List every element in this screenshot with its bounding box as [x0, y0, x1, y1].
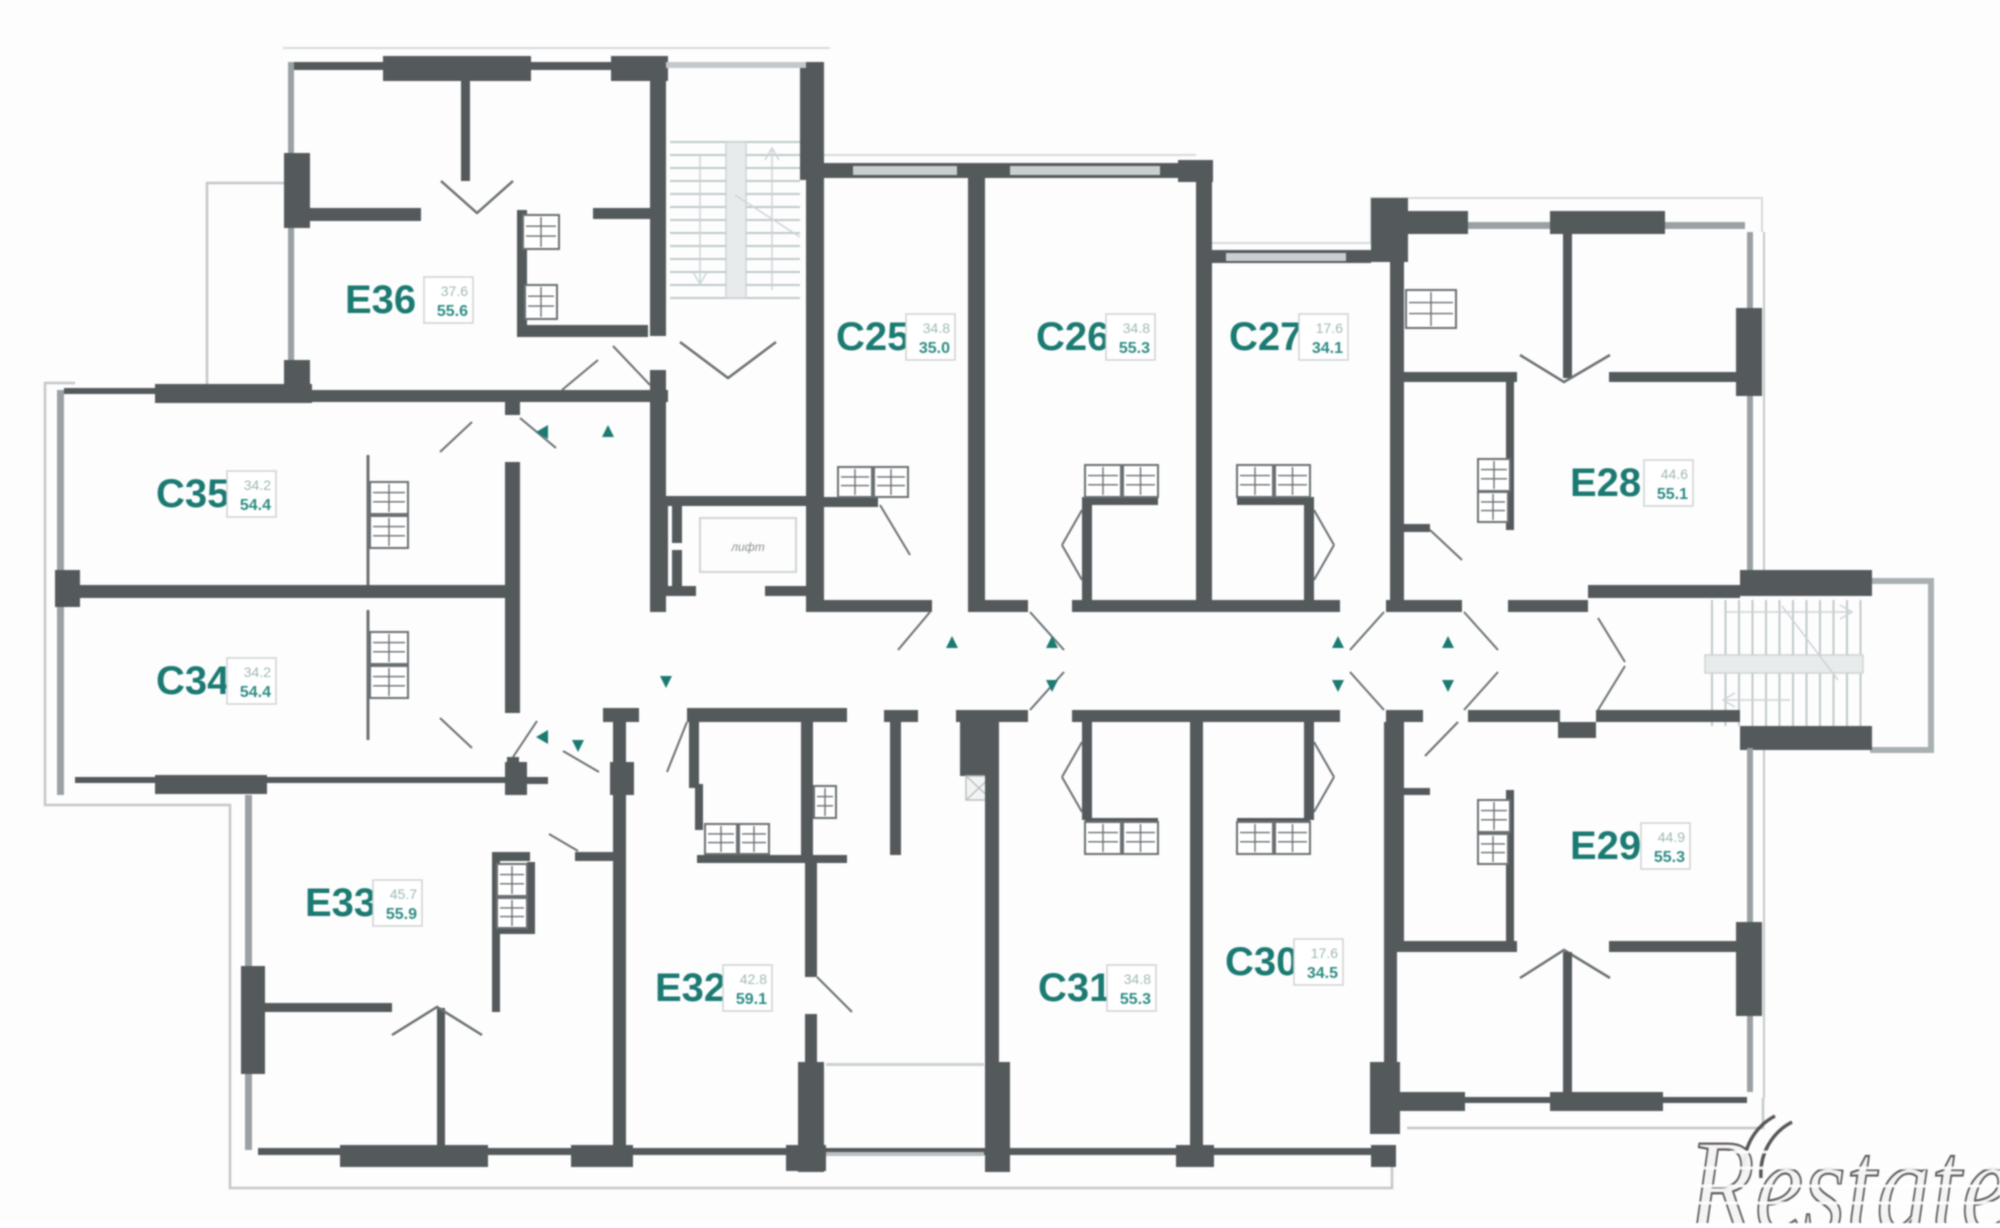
svg-text:C26: C26: [1036, 315, 1109, 359]
svg-text:E32: E32: [655, 966, 726, 1010]
svg-text:34.2: 34.2: [244, 664, 271, 680]
svg-text:55.3: 55.3: [1654, 849, 1685, 866]
svg-text:E36: E36: [345, 278, 416, 322]
svg-text:C25: C25: [836, 315, 909, 359]
svg-text:44.6: 44.6: [1661, 466, 1688, 482]
svg-text:C31: C31: [1038, 966, 1111, 1010]
svg-text:54.4: 54.4: [240, 684, 271, 701]
svg-text:45.7: 45.7: [390, 886, 417, 902]
svg-text:C27: C27: [1229, 315, 1302, 359]
svg-text:42.8: 42.8: [740, 971, 767, 987]
svg-text:17.6: 17.6: [1311, 945, 1338, 961]
svg-text:C34: C34: [156, 659, 230, 703]
svg-text:17.6: 17.6: [1316, 320, 1343, 336]
svg-text:44.9: 44.9: [1658, 829, 1685, 845]
svg-text:34.8: 34.8: [1124, 971, 1151, 987]
svg-text:C30: C30: [1225, 940, 1298, 984]
svg-text:35.0: 35.0: [919, 340, 950, 357]
svg-text:E29: E29: [1570, 824, 1641, 868]
svg-text:E28: E28: [1570, 461, 1641, 505]
svg-text:34.2: 34.2: [244, 477, 271, 493]
svg-text:55.3: 55.3: [1119, 340, 1150, 357]
svg-text:34.5: 34.5: [1307, 965, 1338, 982]
svg-text:55.1: 55.1: [1657, 486, 1688, 503]
svg-text:37.6: 37.6: [441, 283, 468, 299]
svg-text:E33: E33: [305, 881, 376, 925]
svg-text:34.1: 34.1: [1312, 340, 1343, 357]
svg-text:лифт: лифт: [730, 540, 764, 554]
svg-text:55.9: 55.9: [386, 906, 417, 923]
svg-text:34.8: 34.8: [923, 320, 950, 336]
svg-text:34.8: 34.8: [1123, 320, 1150, 336]
svg-text:55.6: 55.6: [437, 303, 468, 320]
svg-text:54.4: 54.4: [240, 497, 271, 514]
svg-text:55.3: 55.3: [1120, 991, 1151, 1008]
svg-text:C35: C35: [156, 472, 229, 516]
svg-text:59.1: 59.1: [736, 991, 767, 1008]
